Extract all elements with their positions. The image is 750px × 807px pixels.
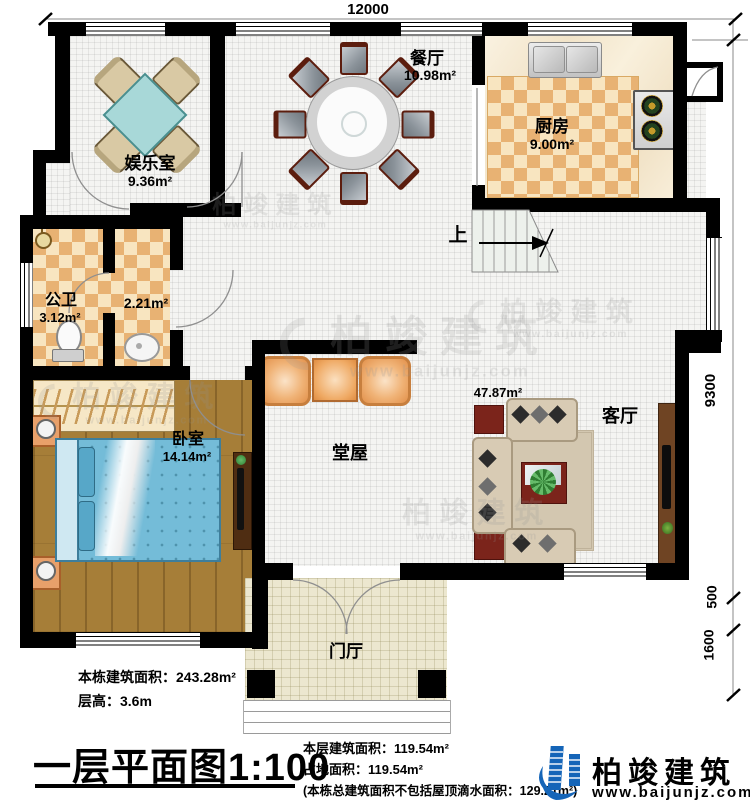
kitchen-door-gap: [472, 85, 485, 185]
note-floor-area: 本层建筑面积：119.54m²: [303, 738, 449, 757]
wall: [170, 215, 183, 270]
plant-icon: [662, 522, 673, 534]
wall: [20, 380, 33, 632]
chair-icon: [274, 111, 307, 139]
room-area-bedroom: 14.14m²: [163, 450, 211, 463]
wall: [130, 203, 215, 217]
room-label-kitchen: 厨房: [535, 118, 569, 135]
window-icon: [235, 22, 332, 36]
room-area-washroom: 2.21m²: [124, 296, 168, 310]
wall: [252, 340, 417, 354]
wall: [645, 563, 689, 580]
wall: [706, 212, 720, 237]
chair-icon: [402, 111, 435, 139]
wall: [673, 22, 687, 198]
wall: [472, 185, 485, 198]
dimension-right-9300: 9300: [702, 374, 719, 407]
wall: [400, 563, 472, 580]
pillow-icon: [78, 447, 95, 497]
wall: [268, 563, 293, 580]
dimension-right-500: 500: [704, 585, 720, 608]
tv-icon: [237, 468, 244, 530]
exterior-patch: [687, 20, 750, 64]
lamp-icon: [36, 561, 56, 581]
wall: [55, 22, 70, 152]
window-icon: [20, 262, 33, 329]
wall: [675, 330, 721, 353]
wall: [103, 313, 115, 366]
note-building-area: 本栋建筑面积：243.28m²: [78, 667, 236, 687]
wall: [472, 563, 563, 580]
room-label-hall: 堂屋: [332, 444, 368, 462]
burner-icon: [641, 120, 663, 142]
wall: [103, 229, 115, 273]
chair-icon: [340, 172, 368, 205]
wall: [165, 22, 235, 36]
dimension-top: 12000: [347, 2, 389, 17]
sink-basin: [533, 46, 565, 73]
exterior-patch: [689, 353, 750, 579]
foyer-floor: [245, 578, 447, 700]
window-icon: [85, 22, 167, 36]
wall: [20, 632, 75, 648]
side-table-icon: [474, 405, 504, 434]
dining-table-center: [341, 111, 367, 137]
washbasin-drain: [136, 343, 142, 349]
wall: [200, 632, 265, 648]
title-underline: [35, 784, 295, 788]
washbasin-icon: [124, 333, 160, 362]
room-label-dining: 餐厅: [410, 50, 444, 67]
wall: [33, 150, 70, 163]
bed-sheet-fold: [95, 440, 155, 556]
brand-site: www.baijunjz.com: [592, 784, 750, 801]
floor-plan-canvas: 柏竣建筑www.baijunjz.com 柏竣建筑www.baijunjz.co…: [0, 0, 750, 807]
window-icon: [706, 237, 722, 332]
page-title: 一层平面图1:100: [33, 736, 330, 791]
room-area-dining: 10.98m²: [404, 68, 456, 82]
room-area-bathroom: 3.12m²: [39, 311, 80, 324]
plant-icon: [236, 455, 246, 465]
plant-icon: [530, 469, 556, 495]
wall: [210, 36, 225, 203]
burner-icon: [641, 95, 663, 117]
note-footprint: 占地面积：119.54m²: [303, 759, 423, 778]
room-area-entertainment: 9.36m²: [128, 174, 172, 188]
bed-headboard: [55, 438, 79, 562]
room-area-kitchen: 9.00m²: [530, 137, 574, 151]
armchair-icon: [359, 356, 411, 406]
wall: [20, 229, 33, 262]
sofa-icon: [504, 528, 576, 568]
note-floor-height: 层高：3.6m: [78, 691, 152, 711]
pillow-icon: [78, 501, 95, 551]
toilet-tank: [52, 349, 84, 362]
wall: [472, 36, 485, 85]
entry-steps: [243, 700, 451, 734]
room-label-entertainment: 娱乐室: [125, 155, 176, 172]
window-icon: [400, 22, 484, 36]
dimension-right-1600: 1600: [701, 629, 717, 660]
room-label-bedroom: 卧室: [172, 432, 204, 448]
wall: [252, 340, 265, 632]
room-label-living: 客厅: [602, 407, 638, 425]
lamp-icon: [35, 232, 52, 249]
wall: [170, 330, 183, 366]
side-table-icon: [312, 358, 358, 402]
sink-basin: [566, 46, 598, 73]
wall: [675, 353, 689, 578]
stairs-up-label: 上: [448, 226, 467, 245]
wall: [245, 366, 252, 380]
brand-logo-icon: [533, 742, 589, 802]
window-icon: [75, 632, 202, 648]
window-icon: [563, 563, 647, 580]
wall: [20, 327, 33, 366]
wall: [20, 215, 183, 229]
tv-icon: [662, 445, 671, 509]
wall: [210, 203, 241, 217]
flue-box: [687, 62, 723, 102]
wall: [330, 22, 400, 36]
wall: [472, 198, 720, 212]
column: [418, 670, 446, 698]
room-label-foyer: 门厅: [329, 643, 363, 660]
wall: [20, 366, 190, 380]
wall: [33, 163, 46, 215]
window-icon: [527, 22, 634, 36]
armchair-icon: [259, 356, 311, 406]
lamp-icon: [36, 419, 56, 439]
wall: [482, 22, 527, 36]
column: [247, 670, 275, 698]
chair-icon: [340, 42, 368, 75]
room-label-bathroom: 公卫: [45, 293, 77, 309]
room-area-living: 47.87m²: [474, 386, 522, 399]
